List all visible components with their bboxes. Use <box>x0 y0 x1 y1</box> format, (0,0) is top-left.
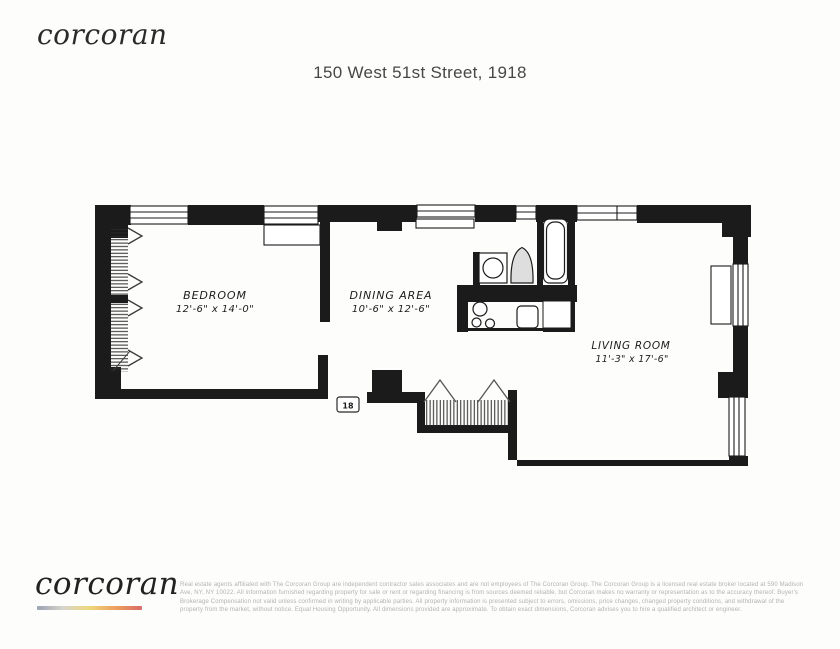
living-room-dimensions: 11'-3" x 17'-6" <box>595 354 668 365</box>
disclaimer-line: property from the market, without notice… <box>180 606 835 614</box>
refrigerator-icon <box>543 301 571 328</box>
door-swing-icon <box>128 300 142 316</box>
window-icon <box>417 205 475 217</box>
wall-corner <box>718 372 748 398</box>
unit-marker-label: 18 <box>342 402 354 411</box>
dining-area-dimensions: 10'-6" x 12'-6" <box>352 304 430 315</box>
kitchen-sink-icon <box>517 306 538 328</box>
bath-sink-icon <box>479 253 507 283</box>
floor-plan: 18 BEDROOM 12'-6" x 14'-0" DINING AREA 1… <box>0 0 840 649</box>
window-icon <box>516 206 536 219</box>
window-icon <box>264 206 318 224</box>
wall-segment <box>320 222 330 322</box>
disclaimer-text: Real estate agents affiliated with The C… <box>180 581 835 615</box>
radiator-icon <box>711 266 731 324</box>
disclaimer-line: Brokerage Compensation not valid unless … <box>180 598 835 606</box>
wall-corner <box>722 205 751 237</box>
door-swings-layer <box>113 228 510 402</box>
bedroom-label: BEDROOM <box>183 289 247 302</box>
door-swing-icon <box>424 380 456 402</box>
wall-segment <box>517 460 748 466</box>
wall-column <box>372 370 402 395</box>
window-icon <box>577 206 637 220</box>
wall-segment <box>103 295 128 303</box>
wall-segment <box>475 205 516 222</box>
bedroom-dimensions: 12'-6" x 14'-0" <box>176 304 254 315</box>
window-icon <box>733 264 748 326</box>
wall-segment <box>318 205 417 222</box>
door-swing-icon <box>128 350 142 366</box>
wall-segment <box>733 237 748 264</box>
window-icon <box>130 206 188 224</box>
toilet-icon <box>511 248 533 284</box>
door-swing-icon <box>128 228 142 244</box>
radiator-icon <box>264 225 320 245</box>
wall-segment <box>95 389 328 399</box>
wall-segment <box>537 216 543 285</box>
stove-burners-icon <box>472 302 495 328</box>
kitchen-fixtures <box>472 301 571 328</box>
unit-marker: 18 <box>337 397 359 412</box>
closet-hatch-icon <box>111 303 128 372</box>
room-labels: BEDROOM 12'-6" x 14'-0" DINING AREA 10'-… <box>176 289 671 365</box>
wall-segment <box>733 326 748 372</box>
wall-segment <box>318 355 328 391</box>
closet-hatch-icon <box>425 400 508 426</box>
living-room-label: LIVING ROOM <box>591 340 670 352</box>
wall-segment <box>417 425 517 433</box>
radiator-icon <box>416 219 474 228</box>
dining-area-label: DINING AREA <box>350 289 433 302</box>
door-swing-icon <box>128 274 142 290</box>
window-icon <box>729 397 745 456</box>
door-swing-icon <box>478 380 510 402</box>
bathroom-fixtures <box>479 219 568 283</box>
disclaimer-line: Ave, NY, NY 10022. All information furni… <box>180 589 835 597</box>
disclaimer-line: Real estate agents affiliated with The C… <box>180 581 835 589</box>
closet-hatch-icon <box>111 227 128 295</box>
walls-layer <box>95 205 751 466</box>
wall-segment <box>457 302 468 332</box>
brand-gradient-bar <box>37 606 142 610</box>
corcoran-footer-logo: corcoran <box>35 566 179 602</box>
bathtub-icon <box>544 219 568 283</box>
wall-segment <box>377 205 402 231</box>
wall-segment <box>188 205 264 225</box>
wall-corner <box>729 456 748 466</box>
wall-segment <box>457 285 577 302</box>
